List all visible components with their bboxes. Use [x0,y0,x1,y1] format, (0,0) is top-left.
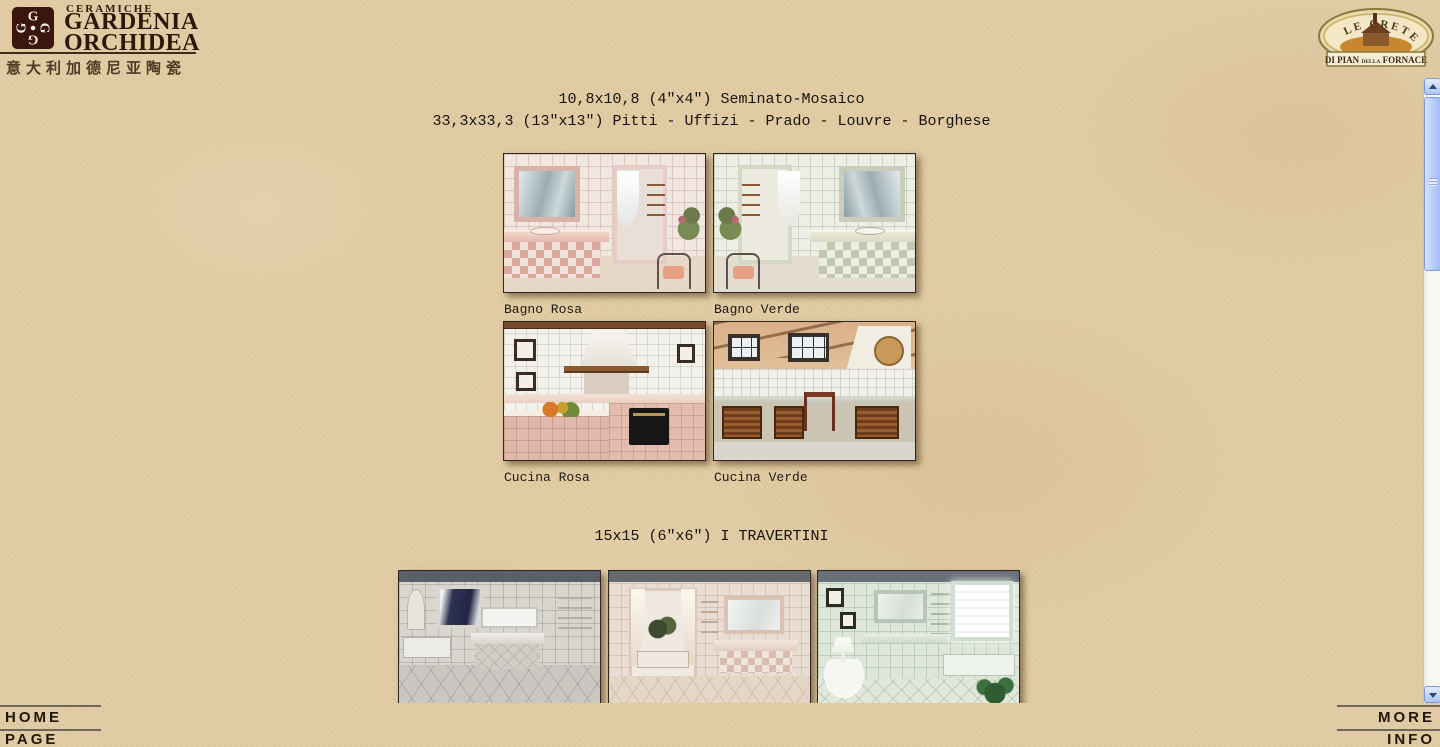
more-info-link[interactable]: MORE INFO [1337,705,1440,731]
wood-mantel [564,366,648,373]
scroll-up-button[interactable] [1424,78,1440,95]
louvered-door [722,406,762,439]
gardenia-monogram-icon: G G G G [12,7,54,49]
scroll-down-button[interactable] [1424,686,1440,703]
shelves [931,585,951,635]
fruit-bowl [536,402,584,417]
curtained-window [437,586,483,627]
monogram-letter: G [14,22,29,33]
mirror [514,166,580,221]
wood-beam [504,322,705,329]
company-name: GARDENIA ORCHIDEA [64,12,200,54]
shelves [701,593,717,640]
caption-cucina-verde: Cucina Verde [714,470,808,485]
section2-title: 15x15 (6″x6″) I TRAVERTINI [0,528,1423,545]
vanity-base [475,644,539,669]
louvered-door [855,406,899,439]
framed-picture [826,588,844,607]
monogram-letter: G [28,9,39,24]
framed-picture [514,339,536,361]
cornice [609,571,810,582]
page: G G G G CERAMICHE GARDENIA ORCHIDEA 意大利加… [0,0,1440,747]
cooking-niche [584,373,628,394]
vanity-top [862,634,946,642]
tile-apron [504,242,600,278]
vanity-base [720,651,792,673]
shelves [558,589,592,630]
curtain [778,171,800,226]
monogram-letter: G [37,23,52,34]
section1-title-line2: 33,3x33,3 (13″x13″) Pitti - Uffizi - Pra… [0,113,1423,130]
statue-niche [407,589,425,630]
kitchen-island [504,410,609,460]
floor [714,442,915,460]
photo-travertini-2 [608,570,811,703]
badge-banner-fornace: FORNACE [1383,55,1428,65]
window [728,334,760,360]
flowers [673,206,703,239]
mirror [839,166,905,221]
shelves [647,176,665,217]
vertical-scrollbar[interactable] [1423,78,1440,703]
tile-apron [819,242,915,278]
bathtub [403,637,451,658]
badge-banner-di-pian: DI PIAN [1325,55,1360,65]
cornice [399,571,600,582]
badge-banner-della: DELLA [1361,59,1380,65]
bathtub [637,651,689,668]
plants [645,612,677,645]
caption-bagno-rosa: Bagno Rosa [504,302,582,317]
framed-picture [840,612,856,629]
monogram-letter: G [27,32,38,47]
floor [609,676,810,703]
louvered-door [774,406,804,439]
chair [657,253,691,289]
photo-bagno-rosa [503,153,706,293]
company-name-chinese: 意大利加德尼亚陶瓷 [6,57,196,78]
potted-plant [971,670,1019,703]
bright-window [951,581,1013,642]
photo-travertini-3 [817,570,1020,703]
photo-bagno-verde [713,153,916,293]
cloth-table [820,659,868,703]
floor [399,665,600,703]
vanity-top [714,640,798,651]
flowers [716,206,746,239]
logo-divider [0,52,196,54]
framed-picture [677,344,695,363]
photo-cucina-rosa [503,321,706,461]
scrollbar-thumb[interactable] [1424,97,1440,271]
framed-picture [516,372,536,391]
photo-travertini-1 [398,570,601,703]
mirror [874,590,926,623]
home-page-link[interactable]: HOME PAGE [0,705,101,731]
mirror [724,596,784,635]
section1-title-line1: 10,8x10,8 (4″x4″) Seminato-Mosaico [0,91,1423,108]
small-table [804,392,834,431]
company-name-line2: ORCHIDEA [64,33,200,54]
le-crete-fornace-badge: LE CRETE DI PIAN DELLA FORNACE [1315,5,1437,71]
vanity-top [471,633,543,644]
photo-cucina-verde [713,321,916,461]
worktop [504,394,705,404]
content-frame: 10,8x10,8 (4″x4″) Seminato-Mosaico 33,3x… [0,78,1423,703]
caption-cucina-rosa: Cucina Rosa [504,470,590,485]
window [788,333,828,362]
mirror [481,607,537,628]
oven [629,408,669,445]
caption-bagno-verde: Bagno Verde [714,302,800,317]
chair [726,253,760,289]
